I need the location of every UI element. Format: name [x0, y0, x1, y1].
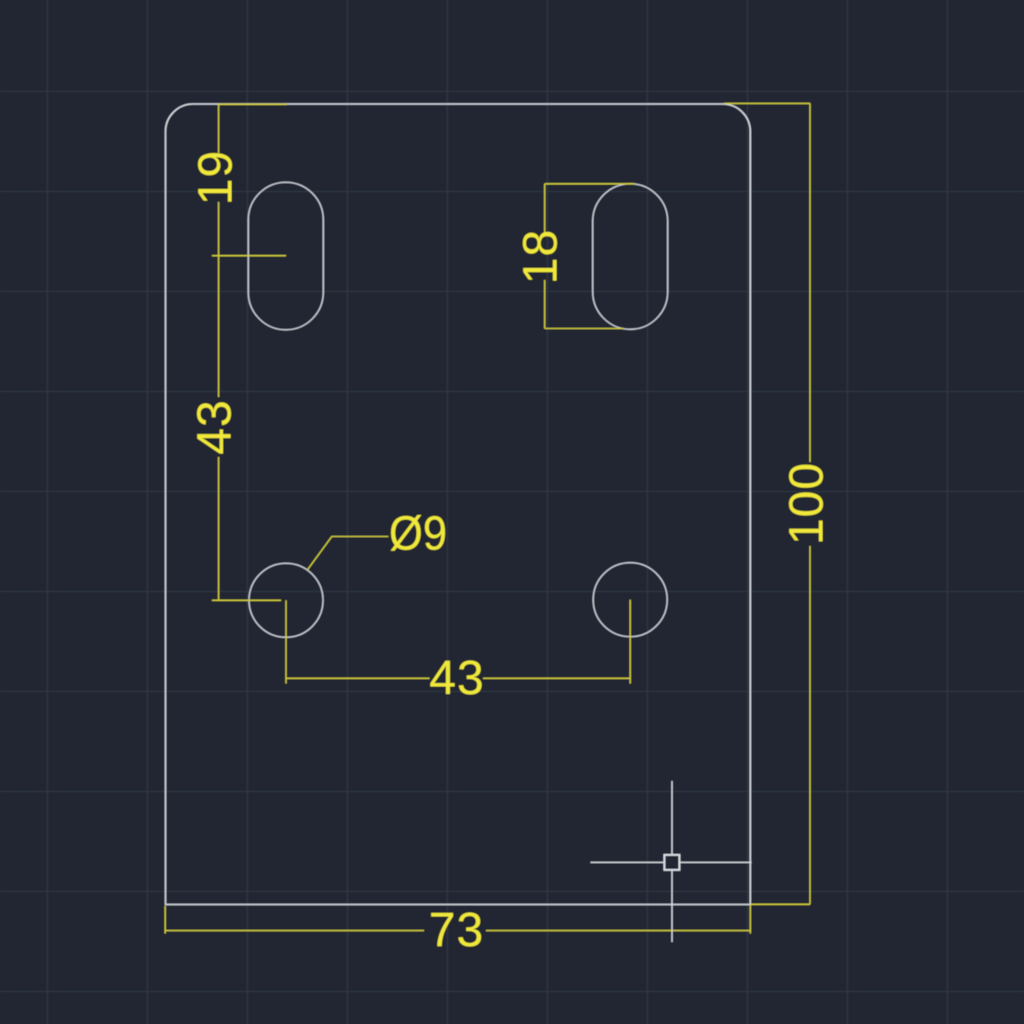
svg-text:19: 19 — [190, 150, 243, 205]
svg-text:100: 100 — [781, 462, 834, 545]
svg-text:Ø9: Ø9 — [389, 508, 447, 561]
svg-text:73: 73 — [429, 904, 484, 957]
svg-text:43: 43 — [188, 399, 241, 454]
svg-text:18: 18 — [515, 229, 568, 284]
svg-text:43: 43 — [429, 652, 484, 705]
